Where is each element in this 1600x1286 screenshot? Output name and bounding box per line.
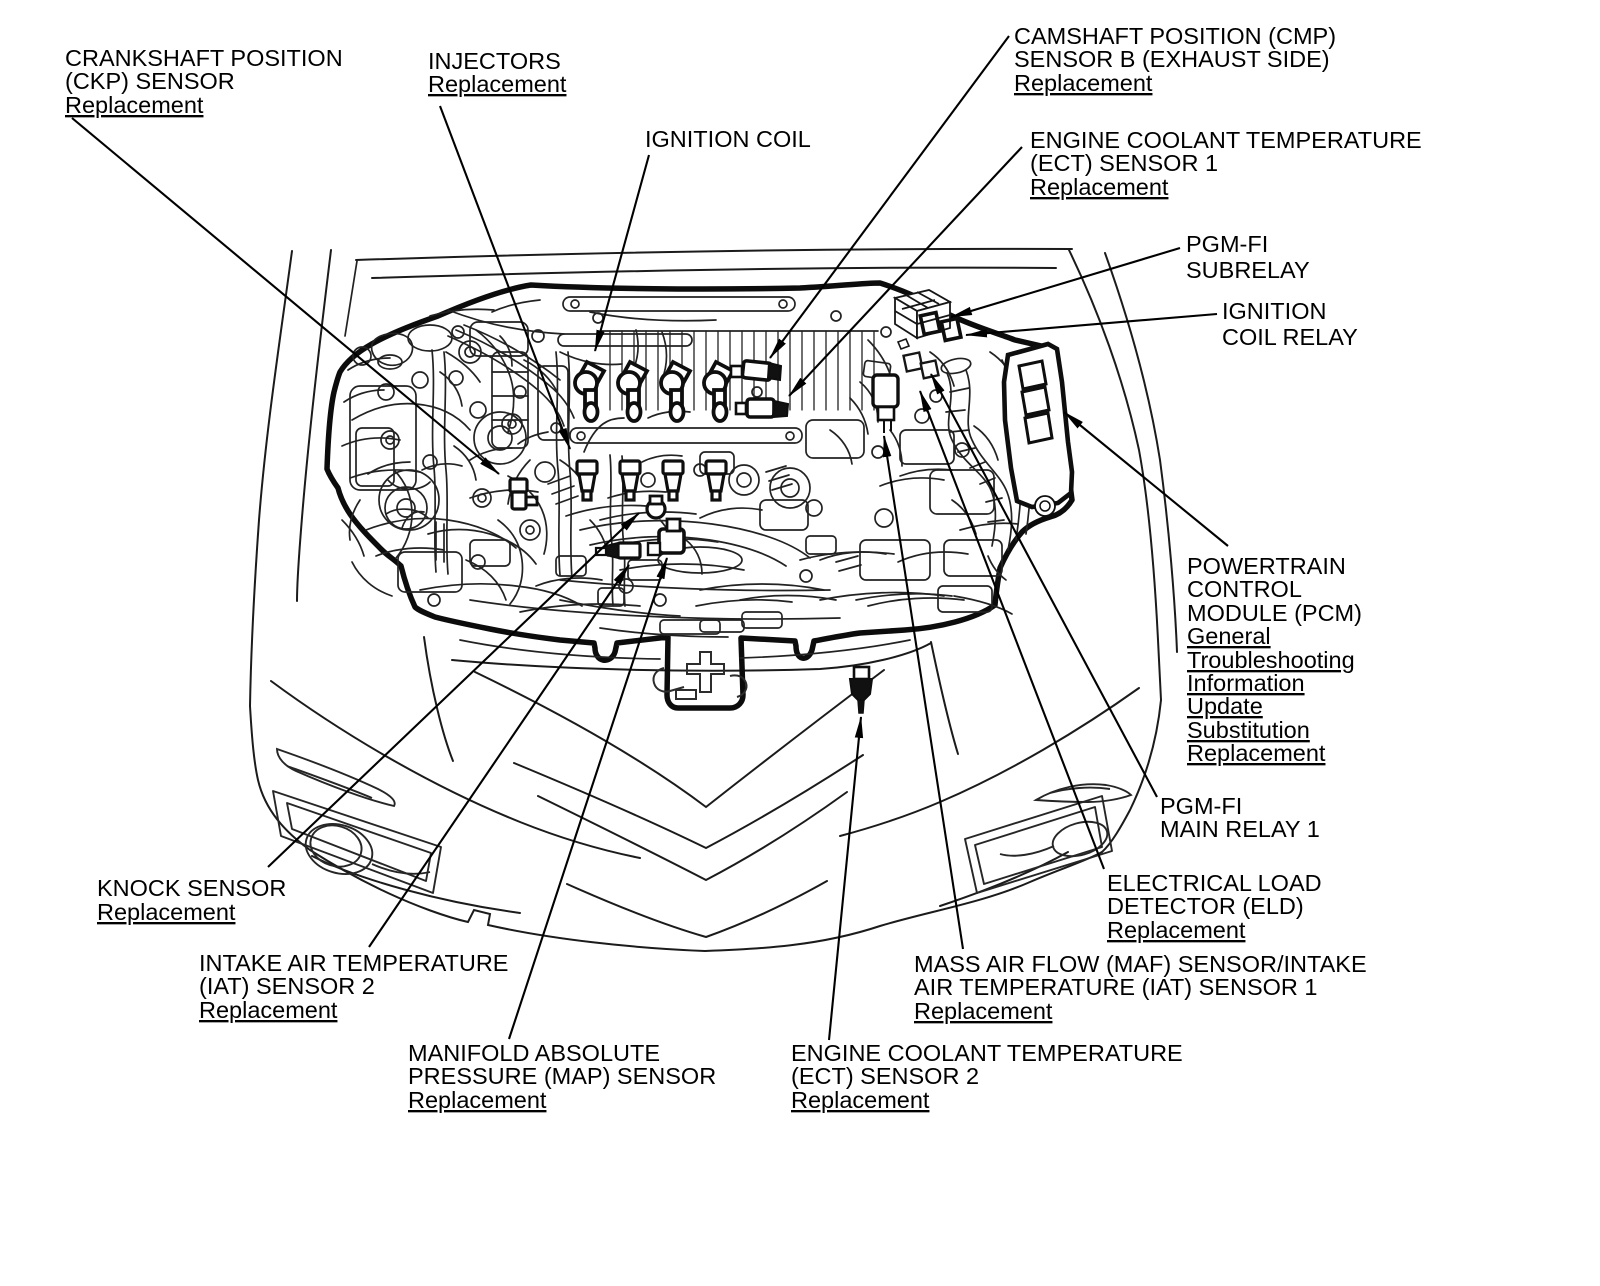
svg-text:(CKP) SENSOR: (CKP) SENSOR (65, 68, 235, 94)
svg-text:Replacement: Replacement (97, 899, 236, 925)
svg-text:Replacement: Replacement (791, 1087, 930, 1113)
svg-text:COIL RELAY: COIL RELAY (1222, 324, 1358, 350)
svg-text:Replacement: Replacement (1014, 70, 1153, 96)
svg-text:MAIN RELAY 1: MAIN RELAY 1 (1160, 816, 1320, 842)
svg-text:Replacement: Replacement (65, 92, 204, 118)
svg-text:IGNITION: IGNITION (1222, 298, 1326, 324)
svg-text:AIR TEMPERATURE (IAT) SENSOR 1: AIR TEMPERATURE (IAT) SENSOR 1 (914, 974, 1317, 1000)
svg-text:SENSOR B (EXHAUST SIDE): SENSOR B (EXHAUST SIDE) (1014, 46, 1330, 72)
svg-text:(ECT) SENSOR 1: (ECT) SENSOR 1 (1030, 150, 1218, 176)
svg-text:Replacement: Replacement (1187, 740, 1326, 766)
svg-text:Update: Update (1187, 693, 1263, 719)
svg-text:PGM-FI: PGM-FI (1186, 231, 1268, 257)
svg-text:PRESSURE (MAP) SENSOR: PRESSURE (MAP) SENSOR (408, 1063, 716, 1089)
svg-text:DETECTOR (ELD): DETECTOR (ELD) (1107, 893, 1304, 919)
svg-text:CONTROL: CONTROL (1187, 576, 1302, 602)
svg-text:Replacement: Replacement (199, 997, 338, 1023)
svg-text:Replacement: Replacement (914, 998, 1053, 1024)
svg-text:Replacement: Replacement (428, 71, 567, 97)
svg-text:Replacement: Replacement (1107, 917, 1246, 943)
svg-text:(IAT) SENSOR 2: (IAT) SENSOR 2 (199, 973, 375, 999)
svg-text:Replacement: Replacement (1030, 174, 1169, 200)
svg-text:Replacement: Replacement (408, 1087, 547, 1113)
svg-text:SUBRELAY: SUBRELAY (1186, 257, 1310, 283)
svg-text:General: General (1187, 623, 1271, 649)
svg-text:IGNITION COIL: IGNITION COIL (645, 126, 811, 152)
svg-text:(ECT) SENSOR 2: (ECT) SENSOR 2 (791, 1063, 979, 1089)
svg-text:KNOCK SENSOR: KNOCK SENSOR (97, 875, 286, 901)
